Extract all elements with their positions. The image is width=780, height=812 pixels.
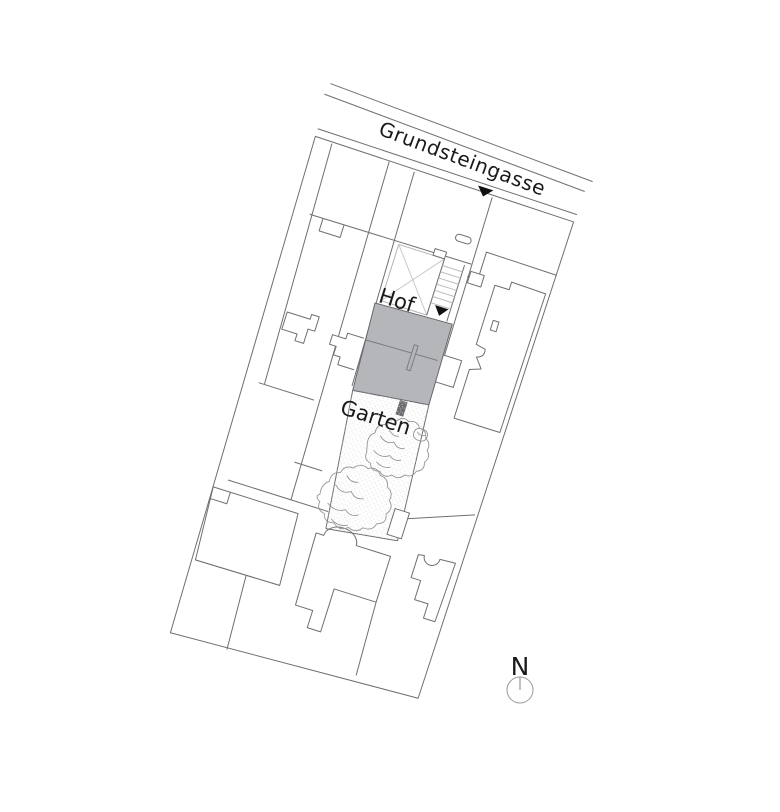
site-plan-drawing: Grundsteingasse [0,0,780,812]
site-plan-page: Grundsteingasse [0,0,780,812]
north-indicator-icon: N [507,652,533,703]
city-block: Hof Garten [160,129,578,712]
